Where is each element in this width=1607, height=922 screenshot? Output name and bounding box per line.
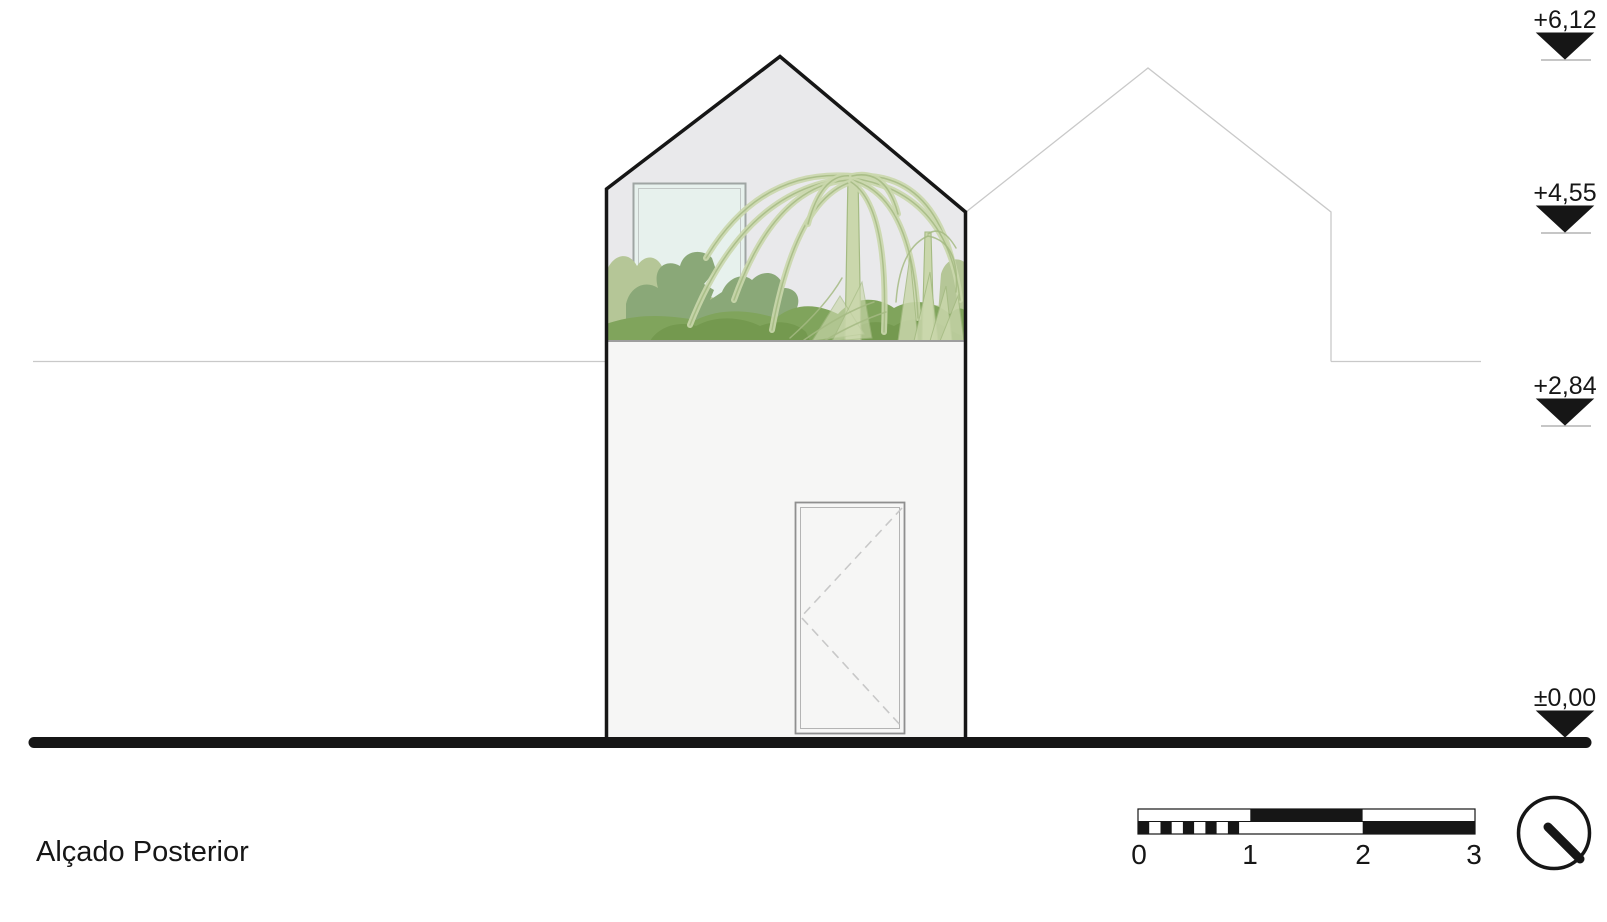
level-label: +6,12 xyxy=(1533,6,1596,34)
scale-bar: 0 1 2 3 xyxy=(1131,809,1482,870)
scale-bar-top-black xyxy=(1250,809,1362,822)
main-house-interior xyxy=(606,55,967,742)
checker xyxy=(1205,822,1216,835)
level-triangle-icon xyxy=(1537,711,1593,737)
level-marker-6-12: +6,12 xyxy=(1533,6,1596,60)
scale-tick-label: 2 xyxy=(1355,839,1371,870)
level-triangle-icon xyxy=(1537,206,1593,232)
door-frame xyxy=(796,503,905,734)
scale-tick-label: 0 xyxy=(1131,839,1147,870)
level-triangle-icon xyxy=(1537,33,1593,59)
background-house-outline xyxy=(966,68,1331,362)
level-marker-2-84: +2,84 xyxy=(1533,372,1596,426)
checker xyxy=(1228,822,1239,835)
level-marker-0-00: ±0,00 xyxy=(1534,684,1596,737)
scale-tick-label: 3 xyxy=(1466,839,1482,870)
level-label: +4,55 xyxy=(1533,179,1596,207)
checker xyxy=(1161,822,1172,835)
elevation-drawing: +6,12 +4,55 +2,84 ±0,00 0 1 2 3 xyxy=(0,0,1607,922)
scale-tick-label: 1 xyxy=(1242,839,1258,870)
level-marker-4-55: +4,55 xyxy=(1533,179,1596,233)
lower-wall-fill xyxy=(606,341,967,742)
level-triangle-icon xyxy=(1537,399,1593,425)
door xyxy=(796,503,905,734)
checker xyxy=(1138,822,1149,835)
drawing-title: Alçado Posterior xyxy=(36,836,249,868)
elevation-sheet: +6,12 +4,55 +2,84 ±0,00 0 1 2 3 xyxy=(0,0,1607,922)
checker xyxy=(1183,822,1194,835)
level-label: ±0,00 xyxy=(1534,684,1596,712)
orientation-symbol xyxy=(1519,798,1590,869)
scale-bar-bottom-black xyxy=(1363,822,1475,835)
level-label: +2,84 xyxy=(1533,372,1596,400)
